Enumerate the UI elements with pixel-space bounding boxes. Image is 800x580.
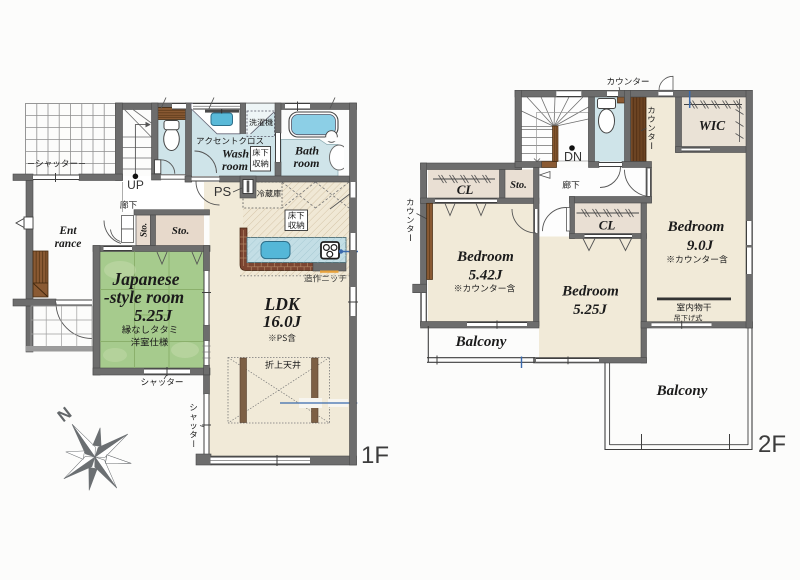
svg-text:Ent: Ent [58, 225, 77, 237]
svg-text:Bedroom: Bedroom [561, 284, 619, 300]
svg-text:9.0J: 9.0J [687, 238, 714, 254]
svg-text:Bedroom: Bedroom [667, 219, 725, 235]
svg-text:UP: UP [127, 178, 144, 192]
svg-text:Balcony: Balcony [455, 334, 507, 350]
svg-text:5.42J: 5.42J [469, 268, 503, 284]
svg-text:5.25J: 5.25J [134, 306, 173, 325]
svg-text:room: room [293, 156, 319, 170]
svg-text:16.0J: 16.0J [263, 312, 302, 331]
svg-text:PS: PS [214, 184, 232, 199]
svg-text:CL: CL [457, 182, 474, 197]
svg-text:Japanese: Japanese [111, 269, 179, 289]
svg-text:Sto.: Sto. [510, 180, 527, 191]
svg-text:LDK: LDK [264, 294, 301, 314]
svg-text:WIC: WIC [699, 118, 726, 133]
svg-text:rance: rance [55, 238, 82, 250]
svg-text:N: N [54, 403, 75, 426]
svg-text:Bedroom: Bedroom [456, 249, 514, 265]
svg-text:room: room [222, 159, 248, 173]
svg-text:CL: CL [599, 218, 616, 233]
svg-text:1F: 1F [361, 442, 389, 469]
svg-text:5.25J: 5.25J [573, 302, 607, 318]
svg-text:DN: DN [564, 150, 582, 164]
svg-text:-style room: -style room [104, 287, 184, 307]
svg-text:Sto.: Sto. [139, 223, 149, 237]
svg-text:Balcony: Balcony [656, 383, 708, 399]
svg-text:Sto.: Sto. [172, 225, 189, 237]
svg-text:2F: 2F [758, 431, 786, 458]
